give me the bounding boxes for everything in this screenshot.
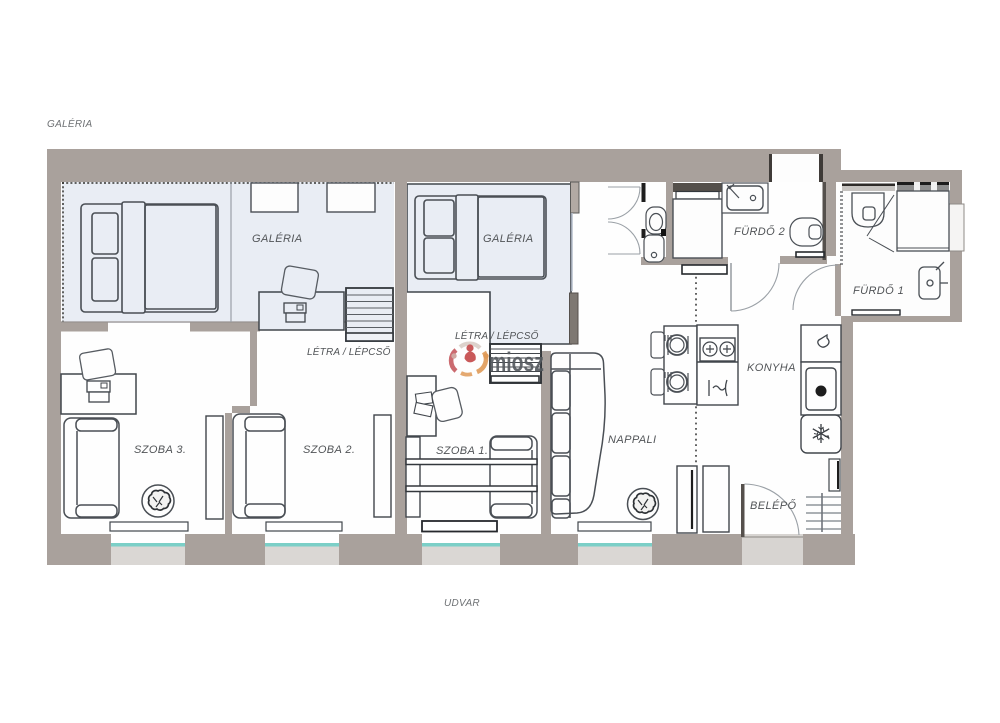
svg-text:LÉTRA / LÉPCSŐ: LÉTRA / LÉPCSŐ (307, 344, 391, 358)
svg-text:LÉTRA / LÉPCSŐ: LÉTRA / LÉPCSŐ (455, 328, 539, 342)
svg-text:NAPPALI: NAPPALI (608, 434, 656, 446)
svg-text:FÜRDŐ 2: FÜRDŐ 2 (734, 224, 785, 238)
svg-text:KONYHA: KONYHA (747, 362, 796, 374)
svg-text:GALÉRIA: GALÉRIA (252, 232, 303, 245)
svg-text:UDVAR: UDVAR (444, 598, 480, 609)
svg-text:SZOBA 2.: SZOBA 2. (303, 444, 355, 456)
svg-text:FÜRDŐ 1: FÜRDŐ 1 (853, 283, 904, 297)
svg-text:GALÉRIA: GALÉRIA (483, 232, 534, 245)
svg-text:SZOBA 3.: SZOBA 3. (134, 444, 186, 456)
svg-text:SZOBA 1.: SZOBA 1. (436, 445, 488, 457)
svg-text:BELÉPŐ: BELÉPŐ (750, 498, 796, 512)
svg-text:miosz: miosz (489, 347, 544, 377)
svg-text:GALÉRIA: GALÉRIA (47, 117, 92, 130)
